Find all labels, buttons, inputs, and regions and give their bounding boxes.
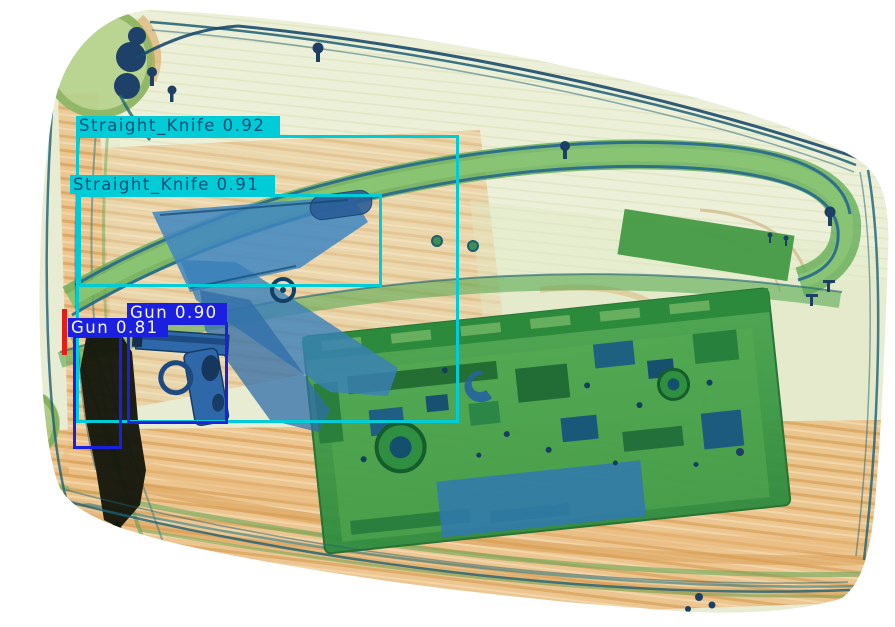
detection-box-gun-0.81	[73, 335, 122, 449]
detection-label-straight_knife-0.91: Straight_Knife 0.91	[70, 175, 275, 194]
red-box-fragment	[62, 309, 67, 355]
detection-label-gun-0.81: Gun 0.81	[68, 318, 168, 337]
detections-layer: Straight_Knife 0.92Straight_Knife 0.91Gu…	[0, 0, 895, 627]
detection-box-gun-0.90	[127, 322, 228, 424]
xray-scan-image: Straight_Knife 0.92Straight_Knife 0.91Gu…	[0, 0, 895, 627]
detection-box-straight_knife-0.91	[78, 194, 382, 287]
detection-label-straight_knife-0.92: Straight_Knife 0.92	[76, 116, 280, 135]
